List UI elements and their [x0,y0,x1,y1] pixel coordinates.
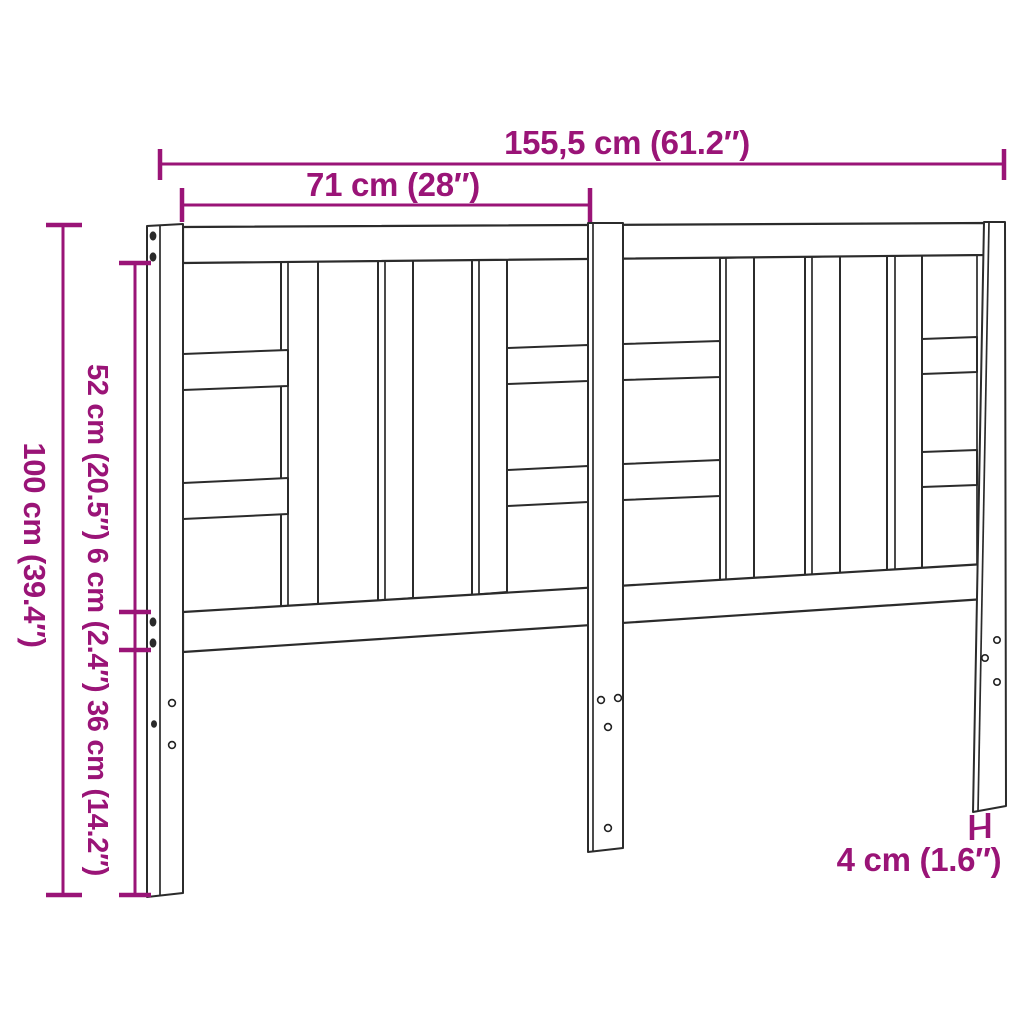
dimension-overall-width: 155,5 cm (61.2″) [160,124,1004,180]
screw-icon [598,697,605,704]
overall-width-label: 155,5 cm (61.2″) [504,124,750,161]
vertical-slat [887,255,922,571]
right-leg [973,222,1006,812]
side-segments-label: 52 cm (20.5″) 6 cm (2.4″) 36 cm (14.2″) [81,364,113,876]
dimension-section-width: 71 cm (28″) [182,166,590,222]
screw-icon [615,695,622,702]
screw-icon [169,742,176,749]
vertical-slat [281,261,318,607]
horizontal-slat [623,460,720,500]
screw-icon [605,724,612,731]
screw-holes [150,232,1000,831]
screw-icon [150,618,155,626]
dimension-leg-depth: 4 cm (1.6″) [837,813,1002,878]
horizontal-slat [183,350,288,390]
horizontal-slat [922,450,977,487]
vertical-slat [378,260,413,601]
screw-icon [982,655,988,661]
horizontal-slat [507,466,588,506]
screw-icon [150,253,155,261]
leg-depth-label: 4 cm (1.6″) [837,841,1002,878]
headboard-drawing [147,222,1006,897]
horizontal-slat [183,478,288,519]
screw-icon [994,637,1000,643]
vertical-slat [720,257,754,582]
vertical-slat [472,259,507,595]
left-leg [147,224,183,897]
overall-height-label: 100 cm (39.4″) [17,442,52,647]
center-post [588,223,623,852]
horizontal-slat [507,345,588,384]
headboard-diagram: 155,5 cm (61.2″) 71 cm (28″) 100 cm (39.… [0,0,1024,1024]
screw-icon [994,679,1000,685]
horizontal-slat [623,341,720,380]
screw-icon [150,232,155,240]
dimension-side-segments: 52 cm (20.5″) 6 cm (2.4″) 36 cm (14.2″) [81,263,151,895]
dimension-overall-height: 100 cm (39.4″) [17,225,82,895]
vertical-slat [805,256,840,577]
horizontal-slat [922,337,977,374]
screw-icon [605,825,612,832]
screw-icon [169,700,176,707]
screw-icon [150,639,155,647]
top-rail [183,223,985,263]
drawing-canvas: 155,5 cm (61.2″) 71 cm (28″) 100 cm (39.… [0,0,1024,1024]
section-width-label: 71 cm (28″) [306,166,480,203]
screw-icon [152,721,156,727]
vertical-slats [281,255,977,607]
